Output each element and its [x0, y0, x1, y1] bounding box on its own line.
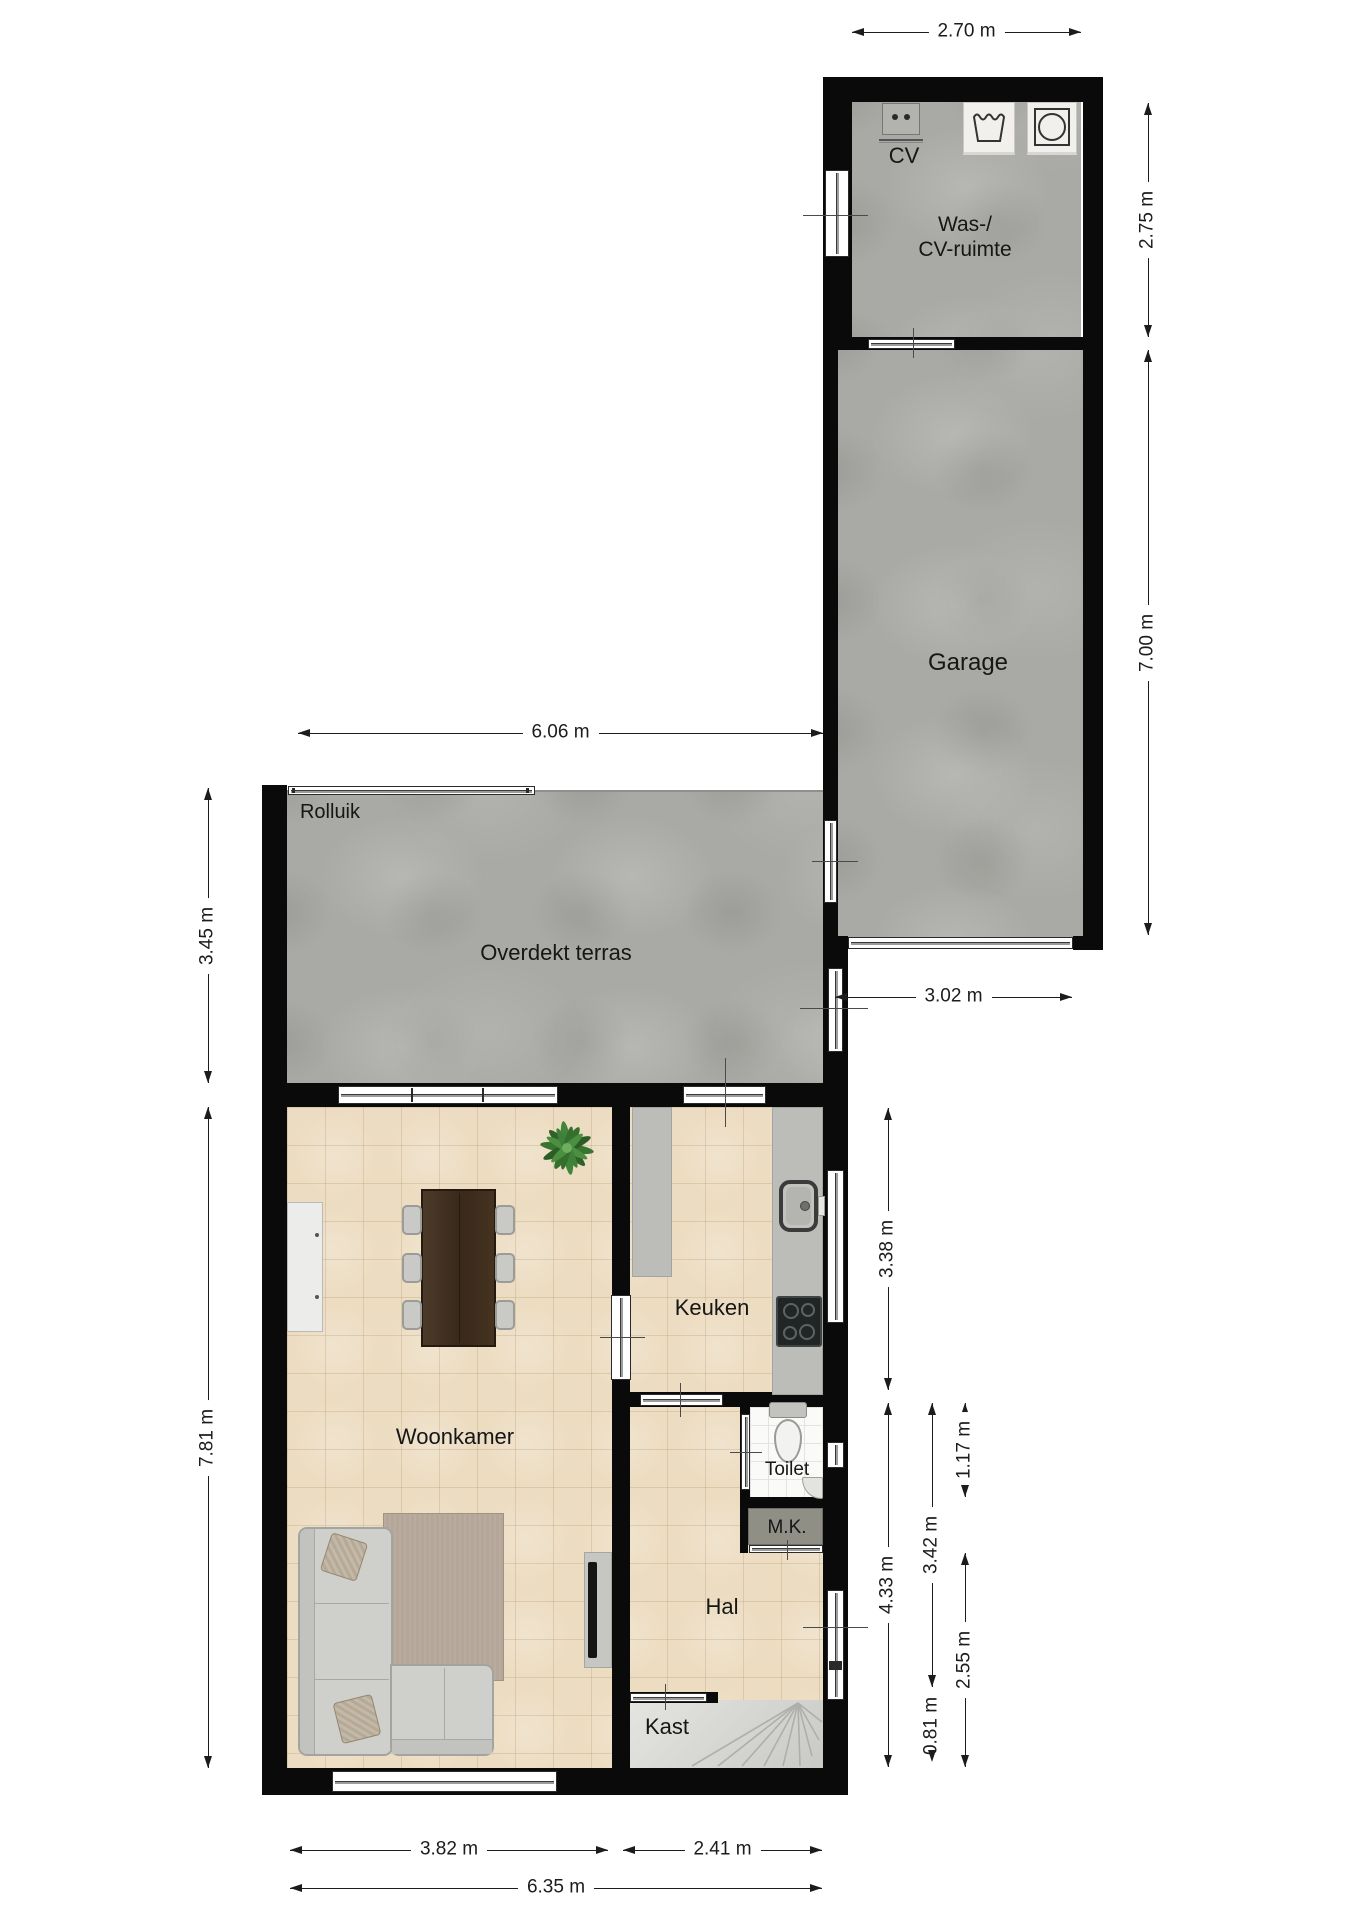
- kitchen-hall-door: [640, 1394, 723, 1406]
- toilet-icon: [769, 1402, 807, 1418]
- hall-label: Hal: [705, 1594, 738, 1620]
- dim-entry-height: 2.55 m: [965, 1553, 966, 1767]
- laundry-room-label: Was-/ CV-ruimte: [918, 213, 1011, 263]
- meter-closet-door: [749, 1545, 823, 1553]
- dim-garage-width: 3.02 m: [835, 997, 1072, 998]
- living-room-window: [332, 1771, 557, 1792]
- dim-living-width: 3.82 m: [290, 1850, 608, 1851]
- garage-label: Garage: [928, 649, 1008, 677]
- toilet-window: [827, 1442, 844, 1468]
- dim-house-width: 6.35 m: [290, 1888, 822, 1889]
- tick: [787, 1540, 788, 1560]
- terrace-side-window: [828, 968, 843, 1052]
- mullion: [411, 1088, 413, 1102]
- rug: [383, 1513, 504, 1681]
- dim-hall-mid-height: 3.42 m: [932, 1403, 933, 1687]
- dim-laundry-height: 2.75 m: [1148, 103, 1149, 337]
- closet-label: Kast: [645, 1714, 689, 1740]
- chair: [402, 1205, 422, 1235]
- shutter-label: Rolluik: [300, 801, 360, 825]
- chair: [402, 1253, 422, 1283]
- plant-icon: [534, 1117, 600, 1179]
- laundry-garage-door: [868, 339, 955, 349]
- mullion: [482, 1088, 484, 1102]
- dim-garage-height: 7.00 m: [1148, 350, 1149, 935]
- dim-hall-full-height: 4.33 m: [888, 1403, 889, 1767]
- tick: [812, 861, 858, 862]
- dim-laundry-width: 2.70 m: [852, 32, 1081, 33]
- meter-closet-label: M.K.: [767, 1517, 806, 1539]
- laundry-tub-icon: [963, 102, 1015, 155]
- wall: [262, 785, 287, 1083]
- tick: [665, 1684, 666, 1710]
- floor-plan: Was-/ CV-ruimte CV Garage Overdekt terra…: [0, 0, 1358, 1920]
- tick: [725, 1058, 726, 1127]
- living-room-label: Woonkamer: [396, 1424, 514, 1450]
- living-terrace-sliding-door: [338, 1086, 558, 1104]
- sofa-section-horizontal: [390, 1664, 494, 1756]
- door-handle-block: [829, 1661, 842, 1670]
- dim-house-height: 7.81 m: [208, 1107, 209, 1768]
- dining-table: [421, 1189, 496, 1347]
- kitchen-sink-icon: [779, 1180, 818, 1232]
- toilet-label: Toilet: [765, 1459, 809, 1481]
- terrace-floor: [287, 790, 823, 1083]
- dim-hall-width: 2.41 m: [623, 1850, 822, 1851]
- tick: [730, 1452, 762, 1453]
- tick: [680, 1383, 681, 1417]
- chair: [495, 1205, 515, 1235]
- garage-door: [848, 937, 1073, 949]
- wall: [823, 77, 1103, 102]
- cv-boiler-icon: [882, 103, 920, 135]
- wall: [1083, 102, 1103, 950]
- dim-terrace-width: 6.06 m: [298, 733, 823, 734]
- chair: [495, 1300, 515, 1330]
- kitchen-label: Keuken: [675, 1295, 750, 1321]
- dim-stairs-depth: 0.81 m: [932, 1690, 933, 1762]
- tick: [803, 1627, 868, 1628]
- chair: [495, 1253, 515, 1283]
- dim-toilet-height: 1.17 m: [965, 1403, 966, 1497]
- tick: [803, 215, 868, 216]
- laundry-window: [825, 170, 849, 257]
- sideboard: [287, 1202, 323, 1332]
- kitchen-counter-left: [632, 1107, 672, 1277]
- cv-label: CV: [889, 143, 920, 169]
- terrace-label: Overdekt terras: [480, 940, 632, 966]
- front-door: [827, 1590, 844, 1700]
- wall: [740, 1508, 748, 1553]
- faucet-icon: [818, 1196, 825, 1216]
- washing-machine-icon: [1027, 102, 1077, 155]
- wall: [1073, 936, 1103, 950]
- dim-terrace-height: 3.45 m: [208, 788, 209, 1083]
- kitchen-counter-right: [772, 1107, 823, 1395]
- wall: [740, 1497, 823, 1508]
- garage-floor: [838, 350, 1083, 938]
- tick: [600, 1337, 645, 1338]
- wall: [612, 1380, 630, 1768]
- stove-icon: [776, 1296, 822, 1347]
- wall: [262, 1107, 287, 1795]
- tv-icon: [588, 1562, 597, 1658]
- wall: [612, 1107, 630, 1295]
- tick: [800, 1008, 868, 1009]
- terrace-shutter: [288, 786, 535, 795]
- dim-kitchen-height: 3.38 m: [888, 1108, 889, 1390]
- kitchen-side-window: [827, 1170, 844, 1323]
- chair: [402, 1300, 422, 1330]
- closet-door: [630, 1693, 707, 1702]
- tick: [913, 328, 914, 358]
